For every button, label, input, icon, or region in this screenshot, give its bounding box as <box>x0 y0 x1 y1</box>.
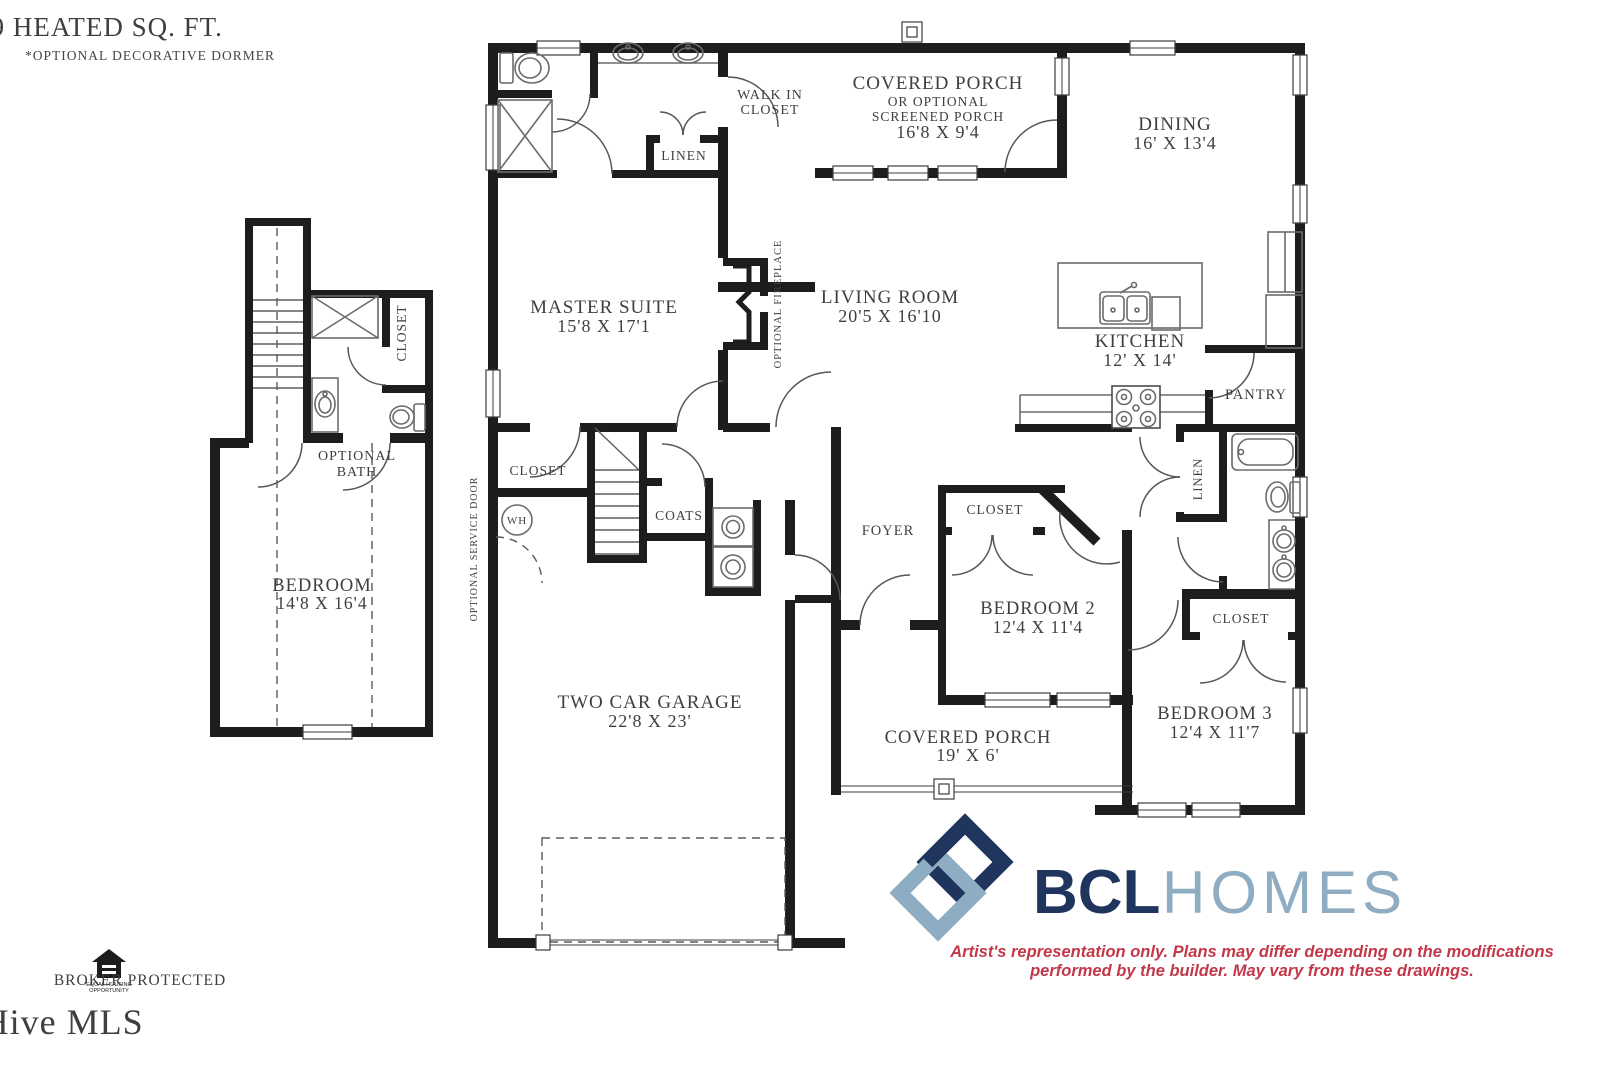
shower-icon <box>312 296 378 338</box>
door-arc <box>258 443 302 487</box>
window <box>1293 688 1307 733</box>
label-coats: COATS <box>655 508 703 523</box>
label-closet-bedroom3: CLOSET <box>1212 611 1269 626</box>
garage-door <box>536 838 792 950</box>
label-bedroom3-dims: 12'4 X 11'7 <box>1170 722 1261 742</box>
window <box>1293 185 1307 223</box>
label-linen-master: LINEN <box>661 148 707 163</box>
window <box>303 725 352 739</box>
label-master-suite: MASTER SUITE <box>530 297 678 318</box>
builder-logo: BCL HOMES Artist's representation only. … <box>900 824 1554 980</box>
door-arc <box>677 381 723 427</box>
label-kitchen-dims: 12' X 14' <box>1103 350 1177 370</box>
label-linen-hall: LINEN <box>1191 458 1205 501</box>
disclaimer-line2: performed by the builder. May vary from … <box>1029 962 1474 980</box>
door-arc <box>776 372 831 427</box>
label-closet-master: CLOSET <box>509 463 566 478</box>
toilet-icon <box>390 404 425 431</box>
window <box>1130 41 1175 55</box>
fireplace-icon <box>723 258 768 350</box>
label-covered-porch-top-dims: 16'8 X 9'4 <box>896 122 980 142</box>
shower-icon <box>498 100 552 172</box>
label-garage-dims: 22'8 X 23' <box>608 711 692 731</box>
label-covered-porch-bottom-dims: 19' X 6' <box>936 745 1000 765</box>
porch-edge <box>841 779 1133 799</box>
label-optional-fireplace: OPTIONAL FIREPLACE <box>773 240 784 369</box>
label-optional-bath-2: BATH <box>337 465 378 480</box>
label-living-room-dims: 20'5 X 16'10 <box>838 306 942 326</box>
homes-logo-text: HOMES <box>1162 859 1407 926</box>
label-bedroom3: BEDROOM 3 <box>1157 704 1272 724</box>
double-door-arc <box>660 112 683 135</box>
room-labels: 2459 HEATED SQ. FT. *OPTIONAL DECORATIVE… <box>0 12 1287 765</box>
label-kitchen: KITCHEN <box>1095 331 1185 352</box>
window <box>888 166 928 180</box>
disclaimer-line1: Artist's representation only. Plans may … <box>949 943 1554 961</box>
window <box>1293 55 1307 95</box>
dormer-marker <box>902 22 922 42</box>
dryer-icon <box>713 547 753 587</box>
label-master-suite-dims: 15'8 X 17'1 <box>557 316 651 336</box>
label-garage: TWO CAR GARAGE <box>558 692 743 713</box>
vanity-sink-icon <box>1269 520 1295 589</box>
footer: EQUAL HOUSING OPPORTUNITY BROKER PROTECT… <box>0 949 226 1042</box>
bathtub-icon <box>1232 434 1298 470</box>
label-covered-porch-top: COVERED PORCH <box>853 73 1024 94</box>
kitchen-island-icon <box>1058 263 1202 330</box>
door-arc <box>1178 537 1223 582</box>
label-dining-dims: 16' X 13'4 <box>1133 133 1217 153</box>
front-door-arc <box>860 575 910 625</box>
label-water-heater: WH <box>507 515 527 527</box>
floor-plan: 2459 HEATED SQ. FT. *OPTIONAL DECORATIVE… <box>0 0 1606 1072</box>
label-pantry: PANTRY <box>1225 387 1287 403</box>
window <box>985 693 1050 707</box>
double-door-arc <box>683 112 706 135</box>
label-dining: DINING <box>1138 114 1212 135</box>
window <box>1138 803 1186 817</box>
window <box>833 166 873 180</box>
label-optional-service-door: OPTIONAL SERVICE DOOR <box>469 477 480 622</box>
label-walk-in-closet-2: CLOSET <box>741 103 800 118</box>
washer-icon <box>713 508 753 546</box>
label-closet-bedroom2: CLOSET <box>966 502 1023 517</box>
mls-copyright: ©2026 Hive MLS <box>0 1002 144 1042</box>
broker-protected: BROKER PROTECTED <box>54 972 226 989</box>
window <box>537 41 580 55</box>
porch-door-arc <box>1005 120 1057 172</box>
sink-icon <box>312 378 338 432</box>
double-door-arc <box>1140 477 1180 517</box>
label-walk-in-closet: WALK IN <box>737 88 803 103</box>
bcl-logo-text: BCL <box>1033 858 1160 927</box>
window <box>1192 803 1240 817</box>
double-door-arc <box>1244 640 1286 682</box>
label-closet-bonus: CLOSET <box>394 304 409 361</box>
door-arc <box>1128 600 1178 650</box>
double-door-arc <box>1140 437 1180 477</box>
double-door-arc <box>1200 640 1243 683</box>
page-subtitle: *OPTIONAL DECORATIVE DORMER <box>25 48 275 63</box>
label-foyer: FOYER <box>862 523 915 539</box>
label-optional-bath: OPTIONAL <box>318 449 396 464</box>
page-title: 2459 HEATED SQ. FT. <box>0 12 223 42</box>
double-door-arc <box>993 535 1033 575</box>
stove-icon <box>1112 386 1160 428</box>
label-bedroom-bonus-dims: 14'8 X 16'4 <box>276 593 367 613</box>
label-covered-porch-top-2: OR OPTIONAL <box>888 94 989 109</box>
double-door-arc <box>952 535 992 575</box>
window <box>1057 693 1110 707</box>
toilet-icon <box>500 53 549 83</box>
door-arc <box>557 119 612 174</box>
bcl-logo-icon <box>900 824 1003 931</box>
label-bedroom2-dims: 12'4 X 11'4 <box>993 617 1084 637</box>
label-living-room: LIVING ROOM <box>821 287 959 308</box>
door-arc <box>662 444 705 487</box>
label-bedroom2: BEDROOM 2 <box>980 599 1095 619</box>
window <box>486 370 500 417</box>
window <box>938 166 977 180</box>
service-door-arc <box>496 537 542 583</box>
window <box>1055 58 1069 95</box>
door-arc <box>348 347 386 385</box>
